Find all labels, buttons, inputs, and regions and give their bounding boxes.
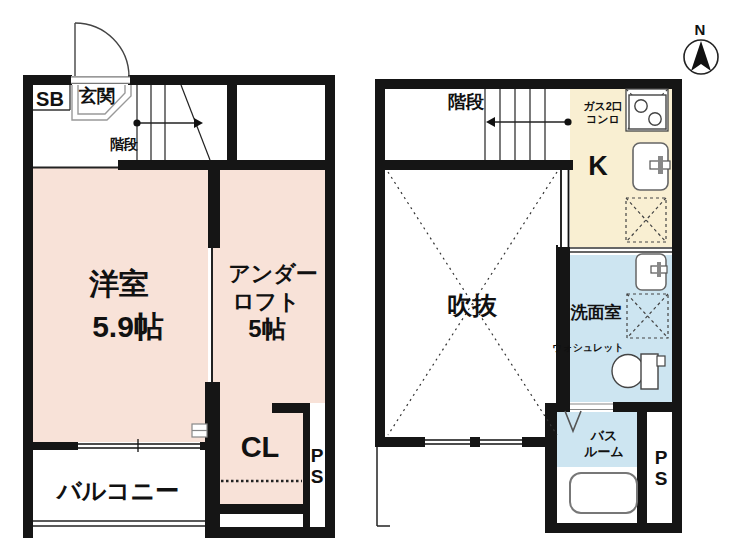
washroom-label: 洗面室 xyxy=(571,304,622,322)
wall xyxy=(375,79,682,89)
entry-door-opening xyxy=(71,76,130,84)
bathroom-label-line2: ルーム xyxy=(584,443,624,459)
entry-door-swing-icon xyxy=(75,23,129,77)
kitchen-label: K xyxy=(588,152,608,180)
pipe-space-2-s: S xyxy=(655,468,668,489)
stairs-2-icon xyxy=(485,89,568,160)
stairs-1-icon xyxy=(137,85,210,160)
gas-stove-label: ガス2口 コンロ xyxy=(583,100,623,125)
stairs-2-label: 階段 xyxy=(448,93,484,112)
stairs-1-label: 階段 xyxy=(110,137,138,152)
wall xyxy=(375,79,385,447)
gas-stove-label-line1: ガス2口 xyxy=(583,100,623,113)
wall xyxy=(470,437,480,447)
stairs-1-start-dot xyxy=(133,119,140,126)
north-arrow-icon xyxy=(684,40,718,74)
washroom-fill xyxy=(570,255,672,402)
pipe-space-1-label: P S xyxy=(311,445,324,487)
under-loft-fill xyxy=(213,170,325,403)
wall xyxy=(556,245,570,412)
western-room-label: 洋室 xyxy=(89,268,149,300)
closet-label: CL xyxy=(241,432,280,462)
wall xyxy=(385,160,573,170)
bathroom-door-opening xyxy=(570,403,613,411)
wall xyxy=(23,75,72,85)
kitchen-washroom-door-line xyxy=(570,248,672,252)
pipe-space-2-p: P xyxy=(655,447,668,468)
wall xyxy=(200,442,213,450)
bathroom-label: バス ルーム xyxy=(584,428,624,459)
shoe-box-label: SB xyxy=(36,89,64,110)
void-label: 吹抜 xyxy=(447,292,497,318)
footprint-edge-line xyxy=(377,447,390,526)
under-loft-size-label: 5帖 xyxy=(248,316,285,341)
wall xyxy=(128,75,335,85)
wall xyxy=(33,442,78,450)
wall xyxy=(205,527,335,538)
floor-plan-canvas: SB 玄関 階段 洋室 5.9帖 アンダー ロフト 5帖 CL P S バルコニ… xyxy=(0,0,750,550)
wall xyxy=(613,402,672,412)
bathtub-icon xyxy=(570,473,637,513)
wall xyxy=(227,85,237,170)
wall xyxy=(208,504,310,514)
stairs-1-arrowhead xyxy=(194,118,203,128)
wall xyxy=(672,79,682,533)
kitchen-void-divider-line xyxy=(558,170,570,247)
balcony-label: バルコニー xyxy=(57,478,179,503)
wall xyxy=(545,403,557,533)
balcony-railing-line xyxy=(33,521,205,526)
western-room-size-label: 5.9帖 xyxy=(92,311,164,343)
stairs-2-arrowhead xyxy=(486,117,495,127)
bathroom-label-line1: バス xyxy=(584,428,624,444)
north-label: N xyxy=(695,22,706,38)
washlet-label: ウォシュレット xyxy=(552,343,624,354)
wall xyxy=(303,403,310,537)
wall xyxy=(325,75,335,538)
wall xyxy=(522,437,557,447)
western-room-fill xyxy=(33,168,208,442)
wall xyxy=(637,412,647,523)
pipe-space-1-s: S xyxy=(311,466,324,487)
wall xyxy=(545,523,682,533)
wall xyxy=(375,437,425,447)
pipe-space-2-label: P S xyxy=(655,447,668,489)
pipe-space-1-p: P xyxy=(311,445,324,466)
wall xyxy=(23,75,33,538)
gas-stove-label-line2: コンロ xyxy=(583,112,623,125)
under-loft-label-line1: アンダー xyxy=(228,262,318,285)
under-loft-label-line2: ロフト xyxy=(232,290,300,313)
wall xyxy=(208,170,220,248)
entrance-label: 玄関 xyxy=(79,87,115,106)
loft-boundary-line xyxy=(211,248,213,382)
